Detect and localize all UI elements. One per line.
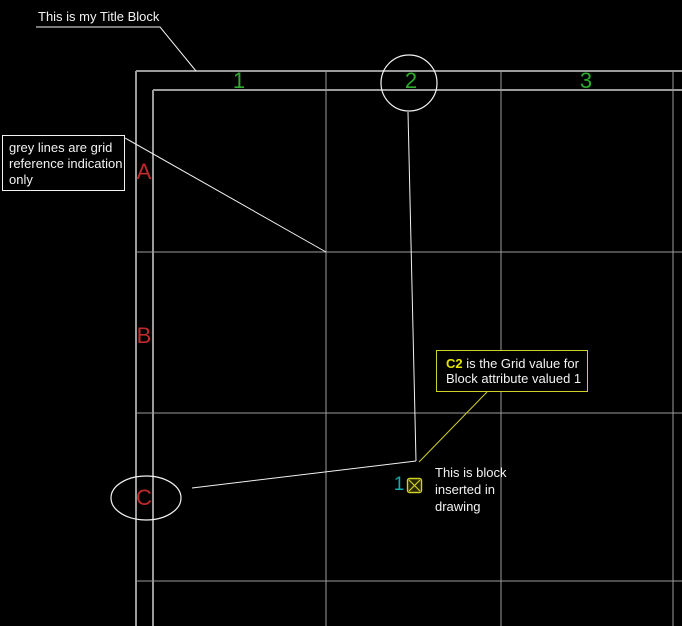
grid-note-callout[interactable]: grey lines are grid reference indication… [2,135,125,191]
block-note-callout[interactable]: This is block inserted in drawing [435,464,507,515]
column-2-leader[interactable] [408,112,416,461]
column-label-2: 2 [405,70,417,92]
c2-note-leader[interactable] [419,392,487,462]
block-attribute-value[interactable]: 1 [394,474,405,496]
grid-note-line-2: reference indication [9,156,124,172]
block-note-line-3: drawing [435,498,507,515]
grid-note-line-1: grey lines are grid [9,140,124,156]
c2-note-line-1-rest: is the Grid value for [466,356,579,371]
block-note-line-1: This is block [435,464,507,481]
drawing-canvas: 1 2 3 A B C This is my Title Block grey … [0,0,682,626]
c2-note-line-2: Block attribute valued 1 [446,371,587,386]
c2-note-line-1: C2 is the Grid value for [446,356,587,371]
title-callout-leader[interactable] [36,27,196,71]
boxed-x-block-reference-icon[interactable] [408,479,422,493]
title-block-callout[interactable]: This is my Title Block [38,9,159,25]
c2-note-callout[interactable]: C2 is the Grid value for Block attribute… [436,350,588,392]
grid-note-line-3: only [9,172,124,188]
row-label-b: B [137,325,152,347]
block-note-line-2: inserted in [435,481,507,498]
column-label-3: 3 [580,70,592,92]
grid-note-leader[interactable] [125,138,326,252]
drawing-geometry [0,0,682,626]
column-label-1: 1 [233,70,245,92]
row-label-a: A [137,161,152,183]
row-label-c: C [136,487,152,509]
c2-grid-value: C2 [446,356,463,371]
row-c-leader[interactable] [192,461,416,488]
